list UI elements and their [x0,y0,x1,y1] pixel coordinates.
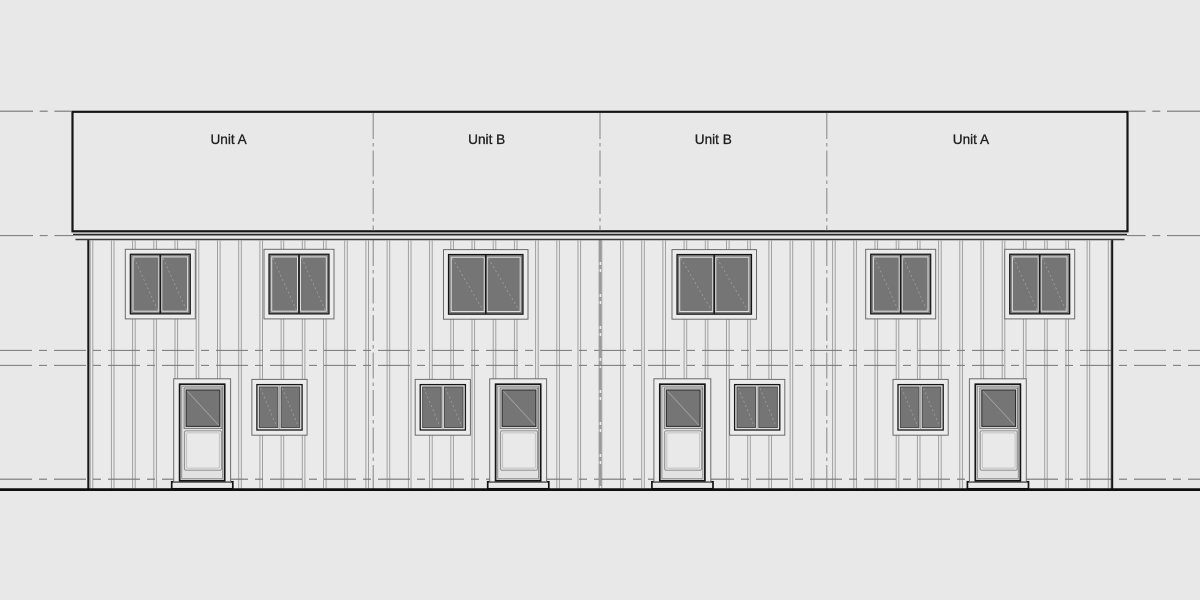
svg-text:Unit A: Unit A [210,132,247,147]
svg-text:Unit B: Unit B [468,132,505,147]
svg-text:Unit A: Unit A [953,132,990,147]
svg-text:Unit B: Unit B [695,132,732,147]
